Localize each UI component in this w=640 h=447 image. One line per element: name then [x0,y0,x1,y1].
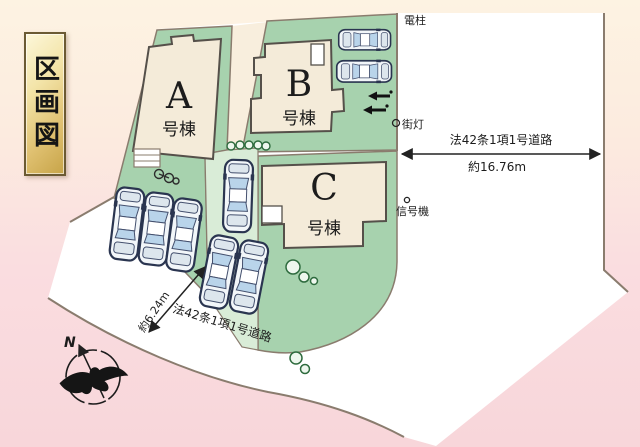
parked-car [339,29,391,51]
parked-car [221,159,254,232]
building-b-porch [311,44,324,65]
bush-row [227,141,270,150]
east-road-far-edge [604,13,628,292]
site-plan-canvas: A 号棟 B 号棟 C 号棟 [0,0,640,447]
building-c-suffix: 号棟 [307,219,341,239]
plan-title-plate: 区画図 [24,32,66,176]
bird-north-icon [60,367,129,394]
steps-plot-a [134,149,160,167]
building-a: A 号棟 [133,35,221,159]
parked-car [337,60,392,84]
compass: N [60,335,129,404]
building-c-notch [262,206,282,223]
east-road-width-label: 約16.76m [468,159,526,174]
east-road-name: 法42条1項1号道路 [450,132,553,147]
compass-north-label: N [64,335,76,351]
building-b-letter: B [286,64,312,105]
plan-title: 区画図 [27,55,64,154]
traffic-signal-label: 信号機 [396,204,429,218]
building-a-letter: A [165,76,193,117]
street-light-label: 街灯 [402,117,424,131]
building-c-letter: C [310,168,338,209]
utility-pole-label: 電柱 [404,13,426,27]
building-a-suffix: 号棟 [162,120,196,140]
building-b: B 号棟 [251,40,344,133]
building-b-suffix: 号棟 [282,109,316,129]
